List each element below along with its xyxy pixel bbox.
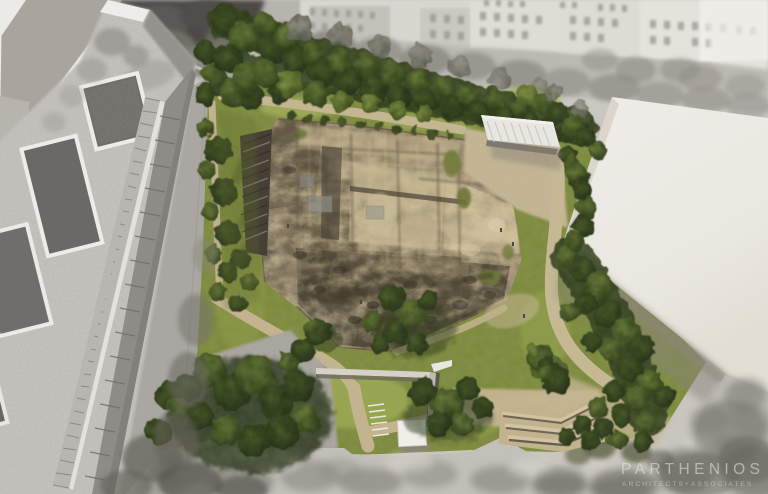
svg-text:PARTHENIOS: PARTHENIOS: [621, 461, 764, 478]
svg-text:ARCHITECTS+ASSOCIATES: ARCHITECTS+ASSOCIATES: [622, 481, 753, 488]
